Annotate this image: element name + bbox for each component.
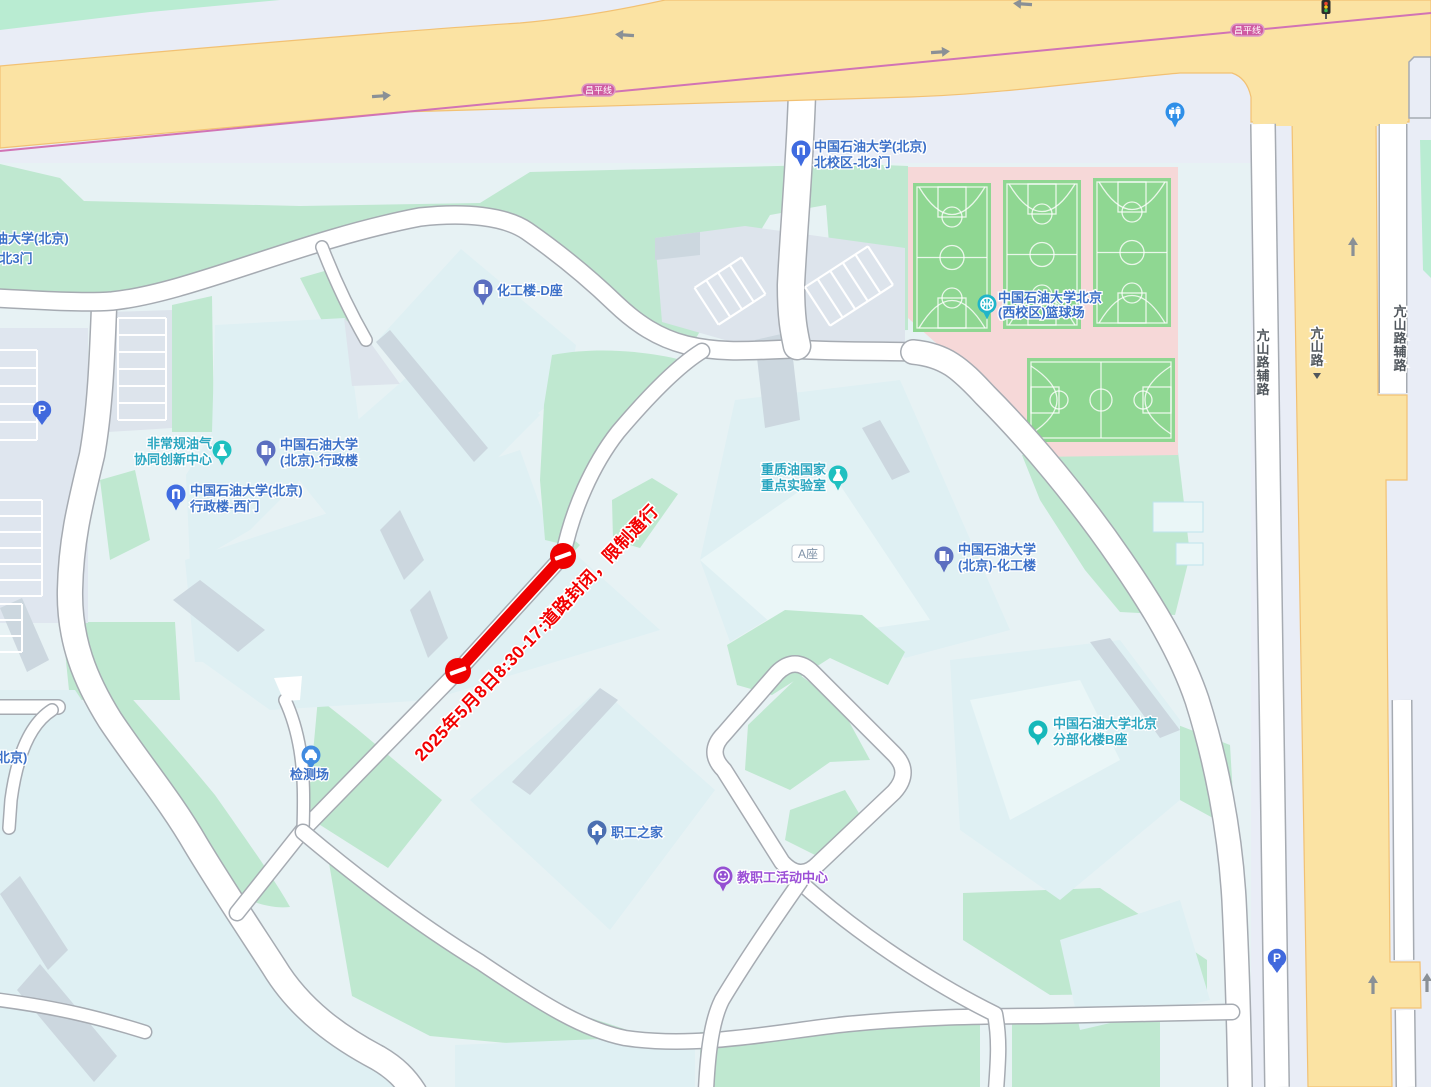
svg-text:职工之家: 职工之家	[611, 825, 664, 840]
svg-text:(北京)-行政楼: (北京)-行政楼	[280, 453, 358, 468]
svg-text:昌平线: 昌平线	[585, 85, 612, 96]
svg-text:路: 路	[1393, 358, 1407, 373]
svg-text:中国石油大学北京: 中国石油大学北京	[998, 290, 1102, 305]
svg-text:P: P	[38, 403, 46, 417]
svg-text:中国石油大学(北京): 中国石油大学(北京)	[190, 483, 303, 498]
svg-text:路: 路	[1256, 382, 1270, 397]
svg-text:中国石油大学: 中国石油大学	[958, 542, 1036, 557]
svg-text:化工楼-D座: 化工楼-D座	[497, 283, 563, 298]
svg-text:分部化楼B座: 分部化楼B座	[1053, 732, 1127, 747]
svg-text:检测场: 检测场	[290, 767, 329, 782]
svg-text:-北3门: -北3门	[0, 251, 33, 266]
svg-text:北京): 北京)	[0, 750, 27, 765]
svg-text:教职工活动中心: 教职工活动中心	[736, 870, 828, 885]
svg-text:北校区-北3门: 北校区-北3门	[814, 155, 891, 170]
svg-text:昌平线: 昌平线	[1234, 25, 1261, 36]
svg-text:(北京)-化工楼: (北京)-化工楼	[958, 558, 1036, 573]
svg-text:中国石油大学北京: 中国石油大学北京	[1053, 716, 1157, 731]
svg-text:重点实验室: 重点实验室	[761, 478, 826, 493]
svg-text:P: P	[1273, 951, 1281, 965]
svg-text:(西校区)篮球场: (西校区)篮球场	[998, 305, 1085, 320]
svg-text:非常规油气: 非常规油气	[147, 436, 212, 451]
svg-text:A座: A座	[798, 546, 818, 561]
svg-text:中国石油大学(北京): 中国石油大学(北京)	[814, 139, 927, 154]
svg-text:行政楼-西门: 行政楼-西门	[189, 499, 259, 514]
svg-text:协同创新中心: 协同创新中心	[134, 452, 212, 467]
svg-text:重质油国家: 重质油国家	[761, 462, 827, 477]
svg-text:路: 路	[1310, 353, 1324, 368]
svg-text:中国石油大学: 中国石油大学	[280, 437, 358, 452]
svg-text:油大学(北京): 油大学(北京)	[0, 231, 69, 246]
